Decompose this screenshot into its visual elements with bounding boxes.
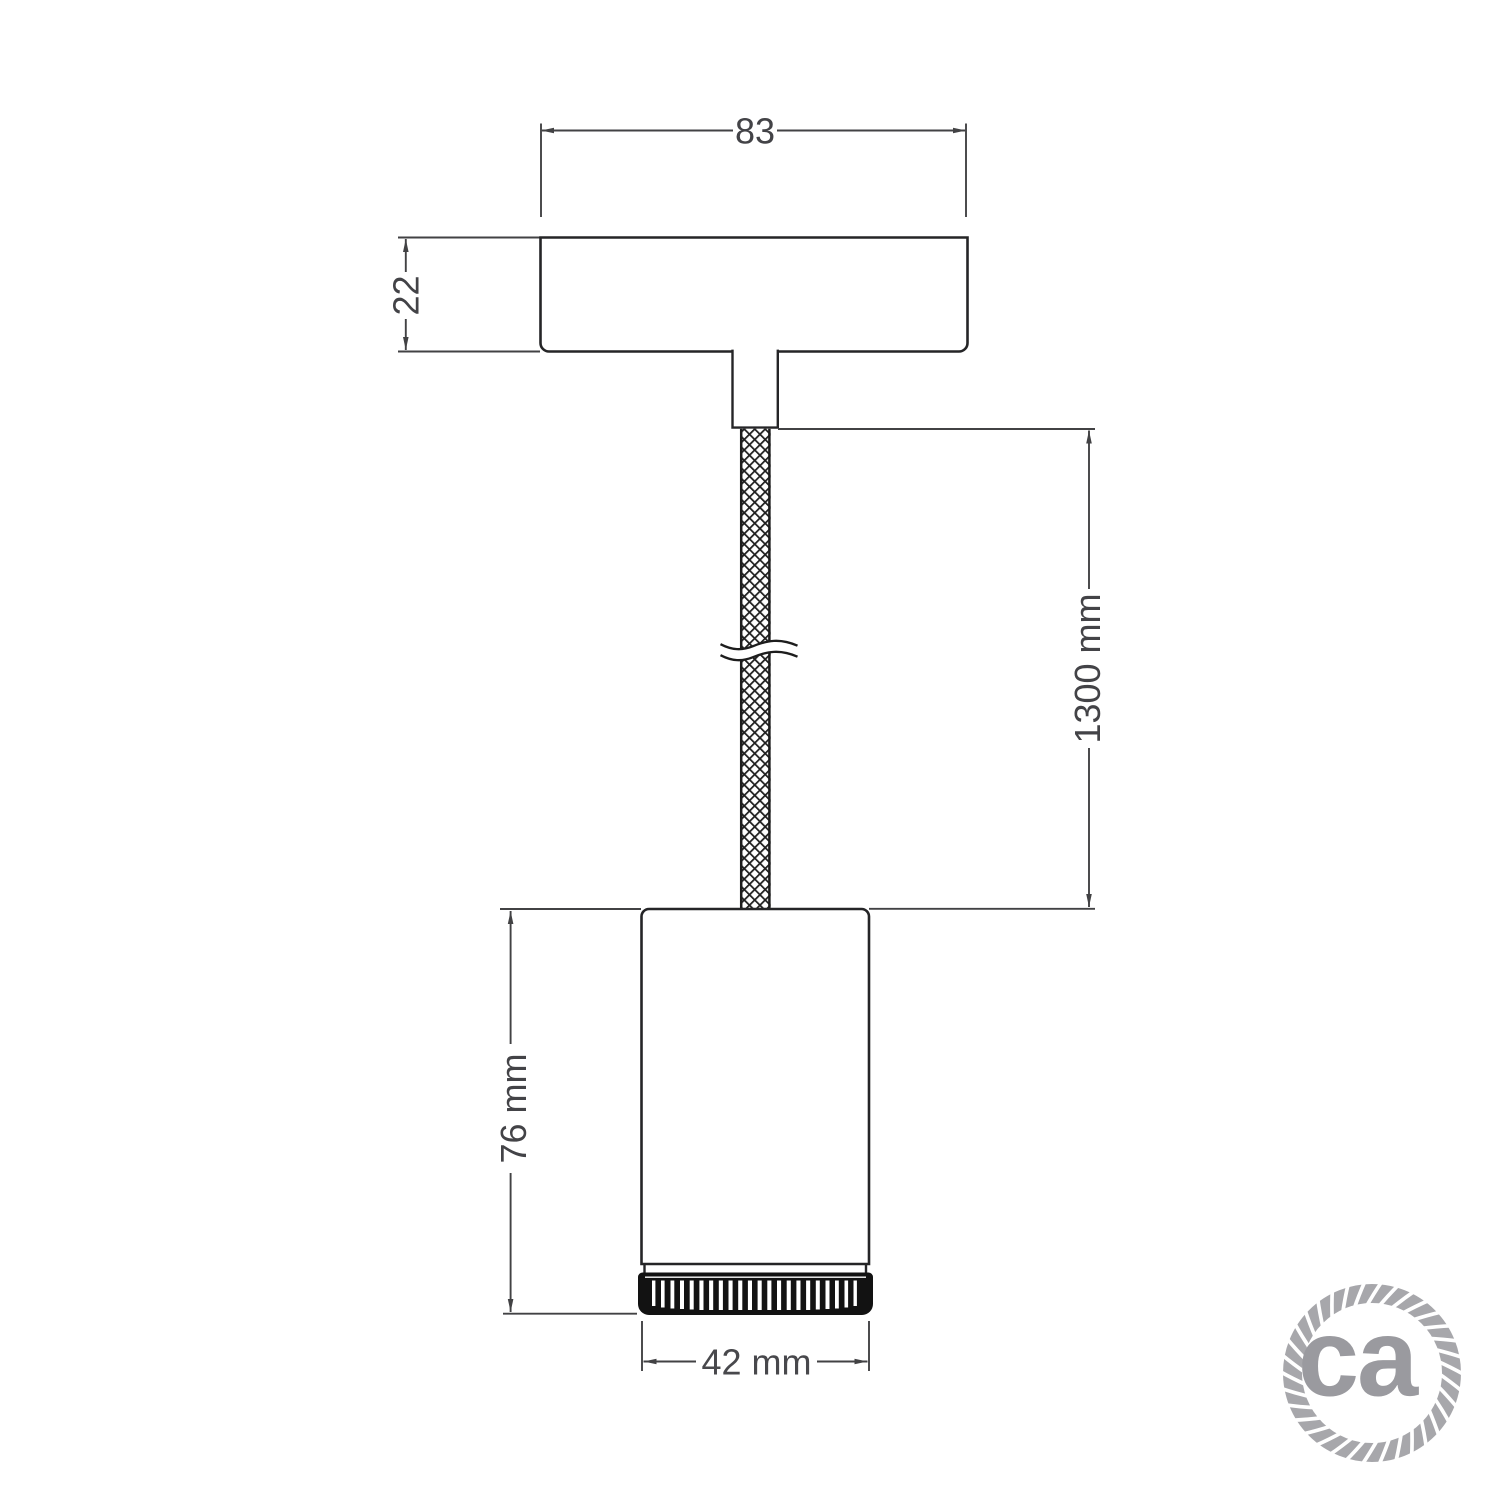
- svg-text:22: 22: [386, 275, 427, 315]
- svg-text:ca: ca: [1298, 1297, 1419, 1420]
- svg-text:42 mm: 42 mm: [701, 1342, 811, 1383]
- svg-text:1300 mm: 1300 mm: [1067, 593, 1108, 743]
- svg-text:76 mm: 76 mm: [493, 1053, 534, 1163]
- svg-text:83: 83: [735, 111, 775, 152]
